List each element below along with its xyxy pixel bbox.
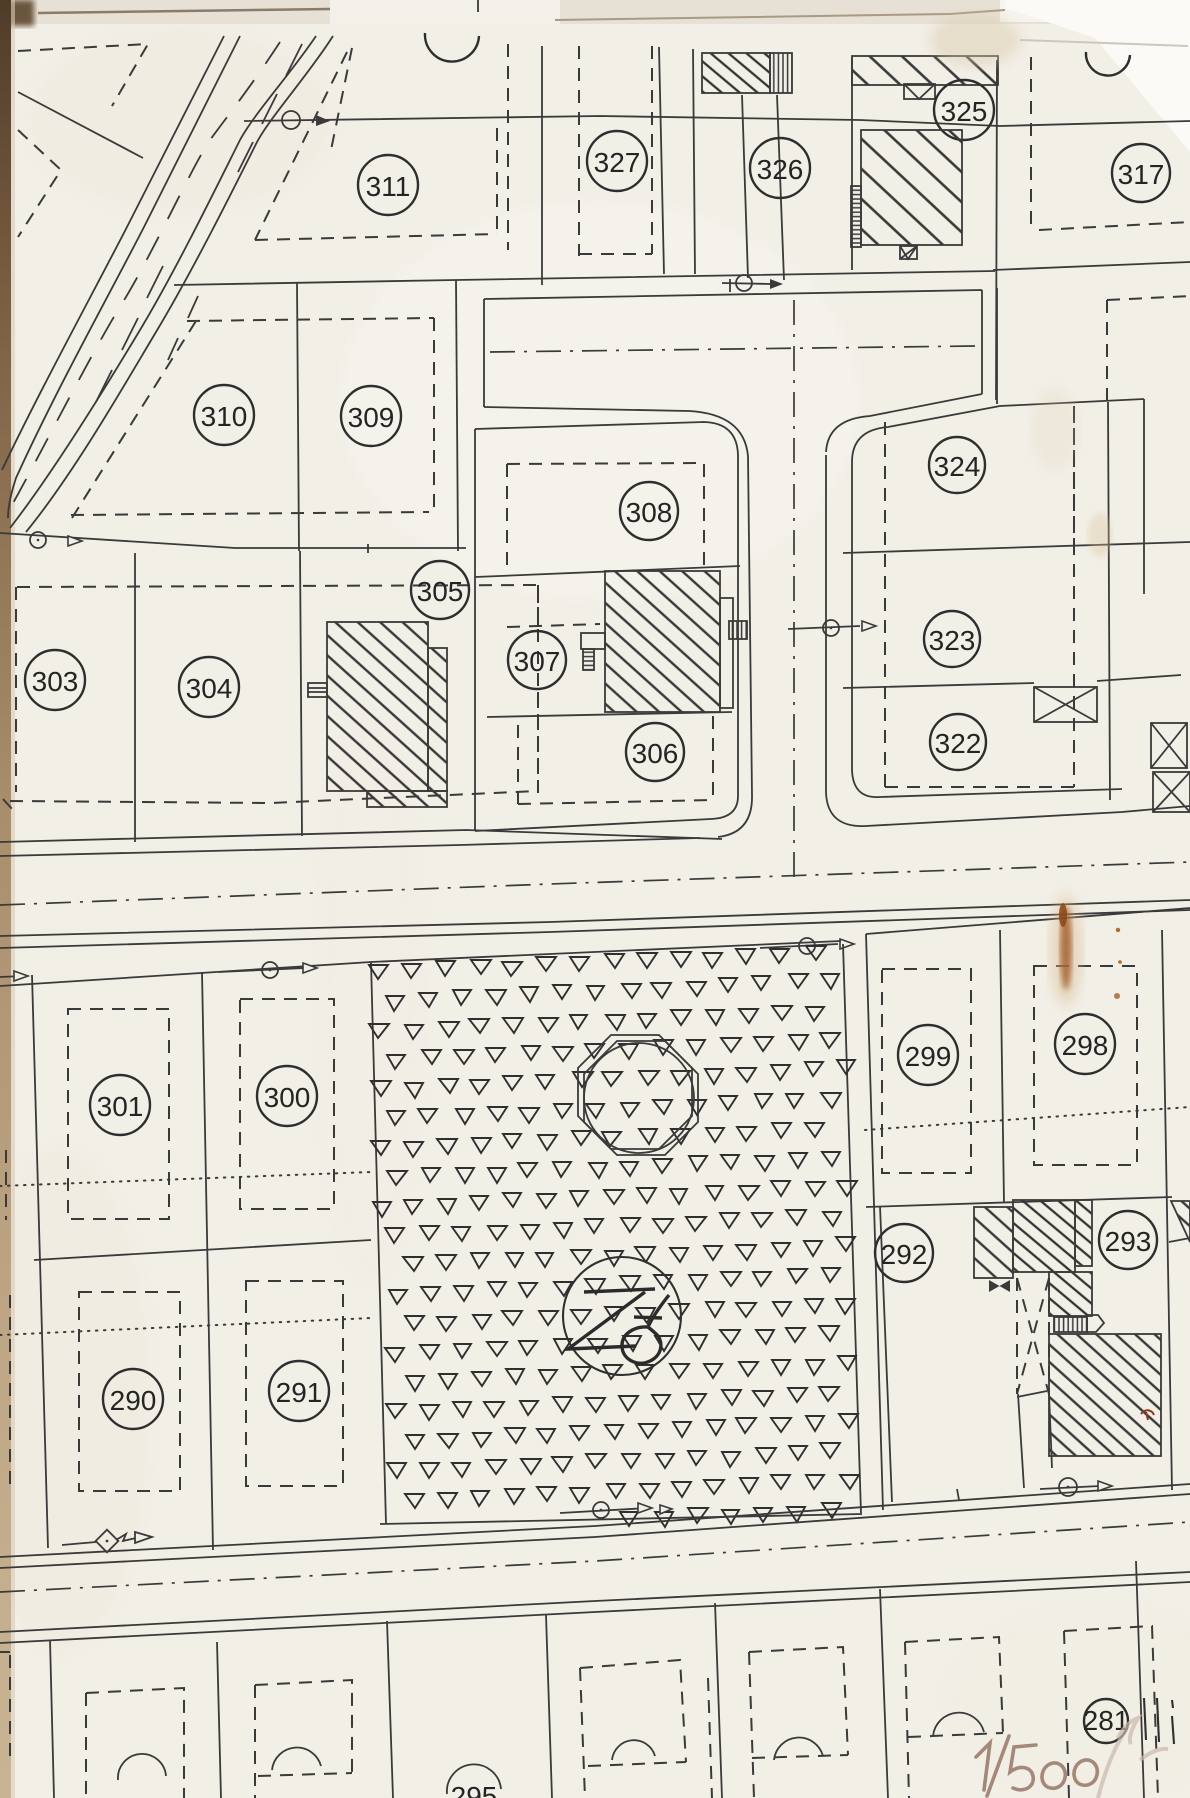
svg-text:311: 311: [366, 171, 411, 202]
svg-text:303: 303: [32, 666, 79, 697]
svg-text:304: 304: [186, 673, 233, 704]
svg-text:327: 327: [594, 147, 641, 178]
svg-text:317: 317: [1118, 159, 1165, 190]
svg-text:301: 301: [97, 1091, 144, 1122]
svg-text:310: 310: [201, 401, 248, 432]
svg-text:290: 290: [110, 1385, 157, 1416]
svg-text:291: 291: [276, 1377, 323, 1408]
svg-text:305: 305: [417, 576, 464, 607]
svg-text:308: 308: [626, 497, 673, 528]
svg-text:295: 295: [451, 1781, 498, 1798]
svg-text:298: 298: [1062, 1030, 1109, 1061]
svg-text:300: 300: [264, 1082, 311, 1113]
svg-text:292: 292: [881, 1239, 928, 1270]
svg-text:306: 306: [632, 738, 679, 769]
svg-text:307: 307: [514, 646, 561, 677]
svg-text:299: 299: [905, 1041, 952, 1072]
svg-text:324: 324: [934, 451, 981, 482]
svg-text:322: 322: [935, 728, 982, 759]
svg-text:323: 323: [929, 625, 976, 656]
svg-text:326: 326: [757, 154, 804, 185]
svg-text:325: 325: [941, 96, 988, 127]
svg-text:293: 293: [1105, 1226, 1152, 1257]
svg-text:309: 309: [348, 402, 395, 433]
